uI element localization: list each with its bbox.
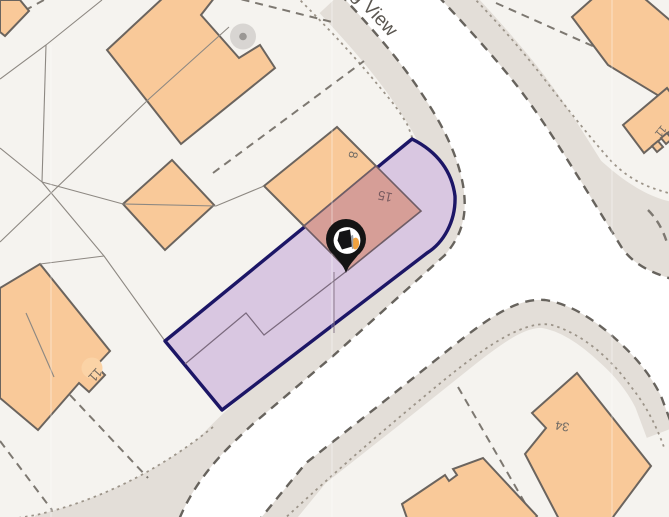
svg-text:34: 34 [554,418,570,434]
svg-text:15: 15 [376,188,393,206]
